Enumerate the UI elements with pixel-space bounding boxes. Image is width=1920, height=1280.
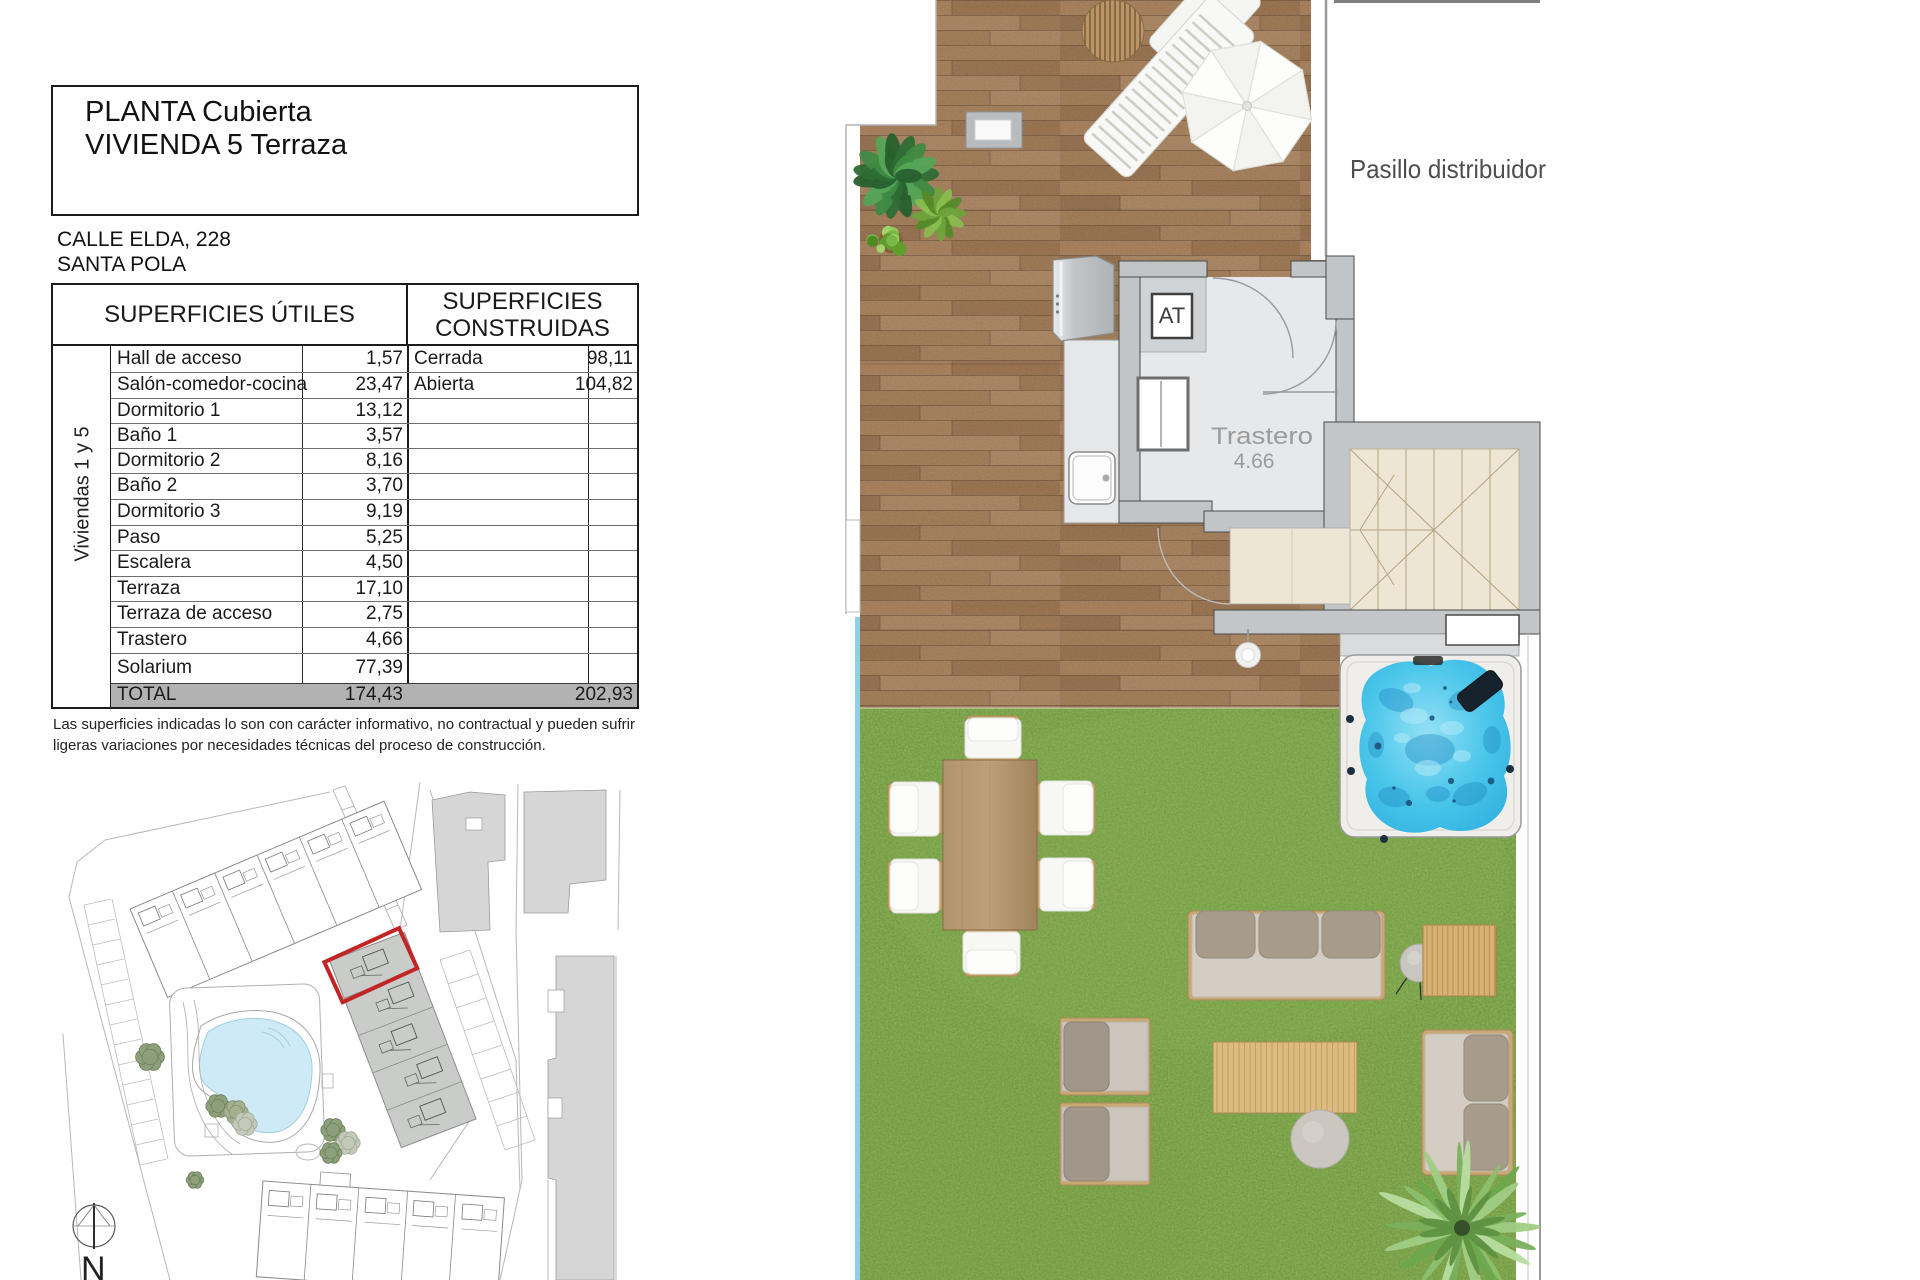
svg-text:N: N bbox=[81, 1250, 106, 1280]
svg-text:4.66: 4.66 bbox=[1234, 450, 1275, 473]
svg-text:Trastero: Trastero bbox=[1211, 423, 1313, 450]
svg-text:AT: AT bbox=[1159, 303, 1185, 328]
svg-text:Pasillo distribuidor: Pasillo distribuidor bbox=[1350, 154, 1546, 184]
